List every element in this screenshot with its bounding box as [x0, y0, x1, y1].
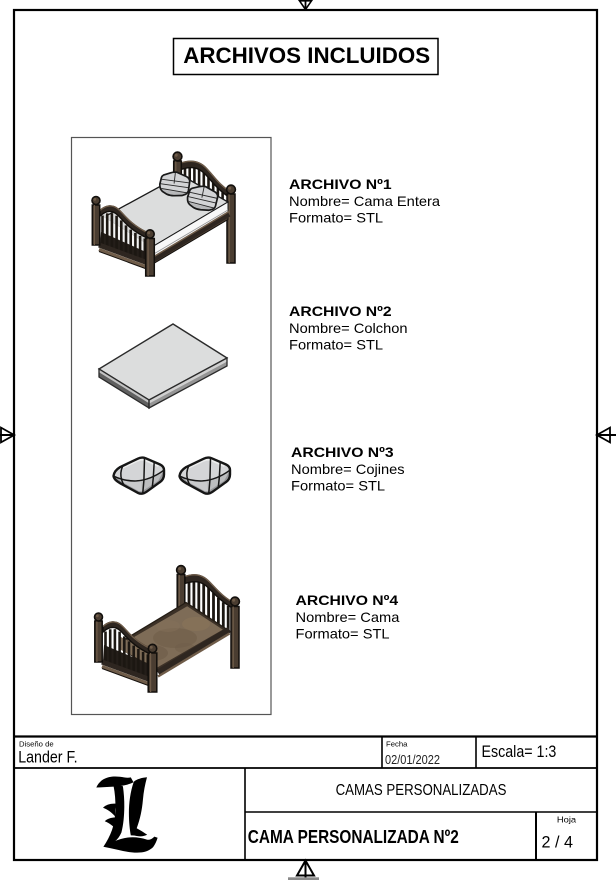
svg-text:02/01/2022: 02/01/2022 — [385, 753, 440, 767]
svg-text:Formato= STL: Formato= STL — [291, 479, 385, 495]
svg-text:CAMAS PERSONALIZADAS: CAMAS PERSONALIZADAS — [336, 782, 507, 799]
svg-text:Diseño de: Diseño de — [19, 740, 54, 749]
svg-text:CAMA PERSONALIZADA Nº2: CAMA PERSONALIZADA Nº2 — [248, 825, 459, 847]
svg-text:Formato= STL: Formato= STL — [289, 338, 383, 354]
svg-text:ARCHIVO Nº3: ARCHIVO Nº3 — [291, 445, 394, 461]
svg-text:ARCHIVOS INCLUIDOS: ARCHIVOS INCLUIDOS — [183, 43, 430, 68]
svg-text:ARCHIVO Nº4: ARCHIVO Nº4 — [296, 593, 399, 609]
svg-text:Nombre= Cama Entera: Nombre= Cama Entera — [289, 194, 440, 210]
svg-text:Hoja: Hoja — [557, 815, 576, 825]
svg-text:Formato= STL: Formato= STL — [296, 627, 390, 643]
svg-text:Nombre= Colchon: Nombre= Colchon — [289, 321, 408, 337]
svg-text:Nombre= Cojines: Nombre= Cojines — [291, 462, 405, 478]
svg-text:Escala= 1:3: Escala= 1:3 — [482, 743, 557, 761]
svg-text:ARCHIVO Nº1: ARCHIVO Nº1 — [289, 177, 392, 193]
svg-text:Nombre= Cama: Nombre= Cama — [296, 610, 400, 626]
svg-text:ARCHIVO Nº2: ARCHIVO Nº2 — [289, 304, 392, 320]
svg-text:2 / 4: 2 / 4 — [542, 832, 573, 851]
svg-text:Formato= STL: Formato= STL — [289, 211, 383, 227]
svg-text:Lander F.: Lander F. — [18, 749, 77, 767]
svg-text:Fecha: Fecha — [386, 740, 408, 749]
